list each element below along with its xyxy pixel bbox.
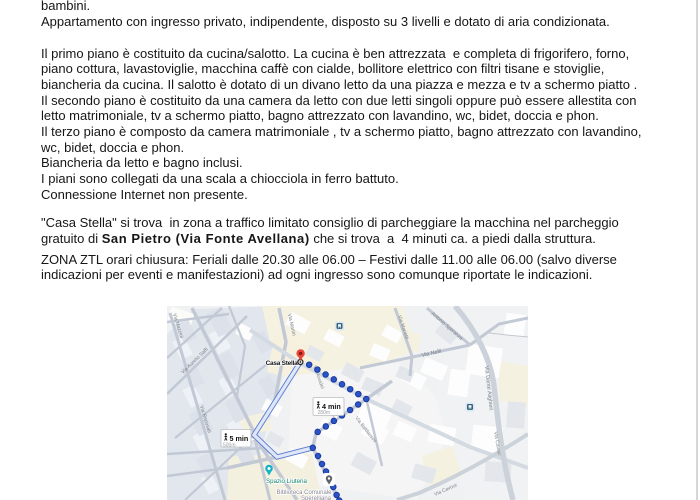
svg-text:280m: 280m xyxy=(318,410,331,416)
svg-text:500m: 500m xyxy=(223,443,236,449)
svg-text:Sperelliana: Sperelliana xyxy=(301,496,332,500)
svg-text:Spazio Liuteria: Spazio Liuteria xyxy=(266,478,307,485)
svg-text:Casa Stella: Casa Stella xyxy=(266,360,299,367)
